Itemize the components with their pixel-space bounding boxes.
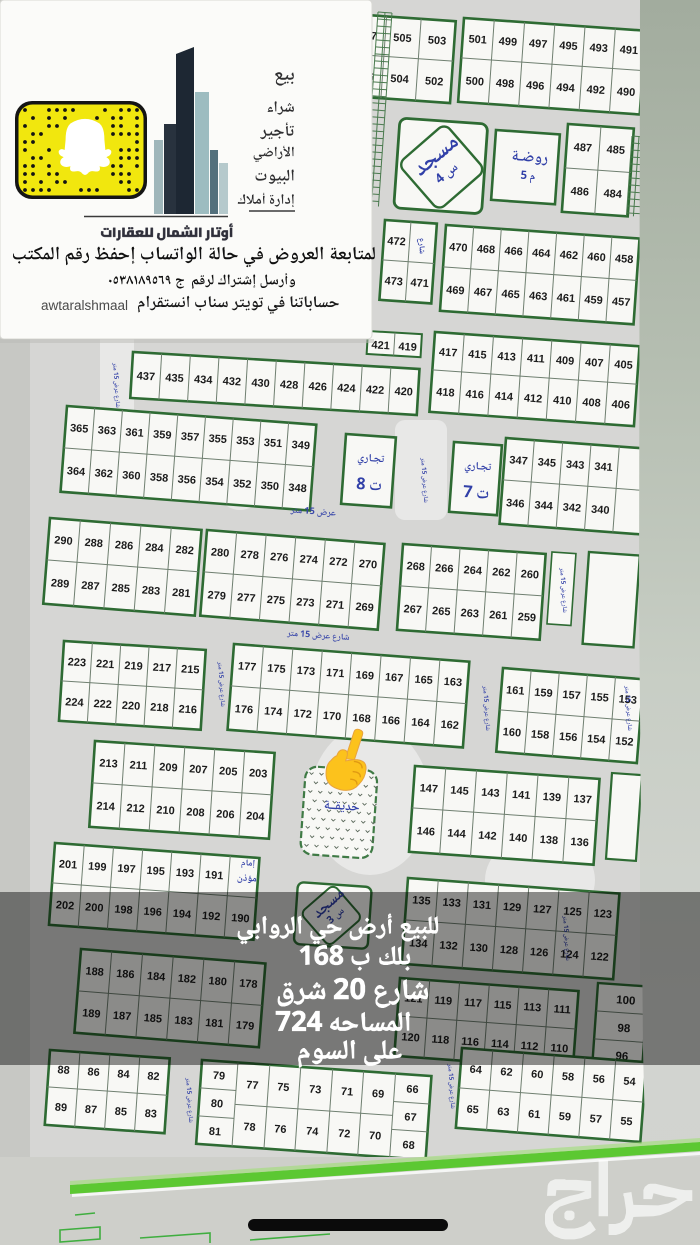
svg-text:221: 221 bbox=[96, 658, 115, 671]
svg-text:284: 284 bbox=[145, 542, 165, 555]
svg-text:419: 419 bbox=[398, 341, 417, 354]
svg-text:473: 473 bbox=[384, 275, 403, 288]
svg-text:71: 71 bbox=[341, 1086, 354, 1099]
svg-text:411: 411 bbox=[527, 352, 546, 365]
svg-text:218: 218 bbox=[150, 702, 169, 715]
svg-text:276: 276 bbox=[270, 551, 289, 564]
svg-text:495: 495 bbox=[559, 40, 578, 53]
svg-text:468: 468 bbox=[476, 243, 495, 256]
svg-text:341: 341 bbox=[594, 461, 613, 474]
svg-text:354: 354 bbox=[205, 476, 225, 489]
svg-text:484: 484 bbox=[603, 188, 623, 201]
svg-text:81: 81 bbox=[208, 1126, 221, 1139]
svg-text:413: 413 bbox=[497, 350, 516, 363]
svg-text:486: 486 bbox=[570, 185, 589, 198]
svg-text:160: 160 bbox=[502, 726, 521, 739]
svg-text:405: 405 bbox=[614, 359, 633, 372]
svg-text:214: 214 bbox=[96, 800, 116, 813]
svg-text:138: 138 bbox=[539, 834, 558, 847]
svg-text:358: 358 bbox=[149, 471, 168, 484]
svg-text:223: 223 bbox=[67, 656, 86, 669]
svg-text:222: 222 bbox=[93, 698, 112, 711]
svg-text:161: 161 bbox=[506, 684, 525, 697]
svg-text:408: 408 bbox=[582, 396, 601, 409]
svg-text:195: 195 bbox=[146, 865, 165, 878]
svg-text:219: 219 bbox=[124, 660, 143, 673]
svg-text:290: 290 bbox=[54, 534, 73, 547]
svg-text:418: 418 bbox=[436, 386, 455, 399]
svg-text:141: 141 bbox=[512, 789, 531, 802]
svg-text:212: 212 bbox=[126, 802, 145, 815]
svg-text:268: 268 bbox=[406, 560, 425, 573]
svg-text:65: 65 bbox=[466, 1104, 479, 1117]
svg-text:86: 86 bbox=[87, 1066, 100, 1079]
svg-text:274: 274 bbox=[299, 553, 319, 566]
svg-text:351: 351 bbox=[263, 437, 282, 450]
svg-text:289: 289 bbox=[50, 577, 69, 590]
svg-text:353: 353 bbox=[236, 435, 255, 448]
svg-text:267: 267 bbox=[403, 603, 422, 616]
svg-text:171: 171 bbox=[326, 667, 345, 680]
svg-text:505: 505 bbox=[393, 32, 412, 45]
svg-text:407: 407 bbox=[585, 357, 604, 370]
svg-text:146: 146 bbox=[416, 825, 435, 838]
svg-text:287: 287 bbox=[81, 580, 100, 593]
svg-text:343: 343 bbox=[566, 459, 585, 472]
svg-text:356: 356 bbox=[177, 474, 196, 487]
svg-text:437: 437 bbox=[136, 370, 155, 383]
svg-text:410: 410 bbox=[553, 394, 572, 407]
svg-text:145: 145 bbox=[450, 785, 469, 798]
svg-text:67: 67 bbox=[404, 1111, 417, 1124]
svg-text:167: 167 bbox=[384, 671, 403, 684]
svg-text:173: 173 bbox=[296, 665, 315, 678]
svg-text:457: 457 bbox=[612, 296, 631, 309]
svg-text:168: 168 bbox=[352, 712, 371, 725]
svg-text:204: 204 bbox=[246, 810, 266, 823]
svg-text:164: 164 bbox=[411, 717, 431, 730]
svg-text:61: 61 bbox=[528, 1108, 541, 1121]
svg-text:205: 205 bbox=[219, 765, 238, 778]
svg-text:69: 69 bbox=[372, 1088, 385, 1101]
svg-text:493: 493 bbox=[589, 42, 608, 55]
svg-text:193: 193 bbox=[175, 867, 194, 880]
svg-text:158: 158 bbox=[530, 728, 549, 741]
svg-text:469: 469 bbox=[446, 284, 465, 297]
svg-text:63: 63 bbox=[497, 1106, 510, 1119]
svg-text:269: 269 bbox=[355, 601, 374, 614]
svg-text:412: 412 bbox=[523, 392, 542, 405]
svg-text:275: 275 bbox=[266, 594, 285, 607]
svg-text:461: 461 bbox=[556, 292, 575, 305]
svg-text:211: 211 bbox=[129, 759, 148, 772]
svg-text:84: 84 bbox=[117, 1068, 131, 1081]
svg-text:66: 66 bbox=[406, 1083, 419, 1096]
svg-text:216: 216 bbox=[178, 703, 197, 716]
svg-text:209: 209 bbox=[159, 761, 178, 774]
svg-text:282: 282 bbox=[175, 544, 194, 557]
svg-text:89: 89 bbox=[54, 1101, 67, 1114]
svg-text:54: 54 bbox=[623, 1075, 637, 1088]
svg-text:342: 342 bbox=[562, 501, 581, 514]
svg-text:136: 136 bbox=[570, 836, 589, 849]
svg-text:152: 152 bbox=[615, 735, 634, 748]
svg-text:177: 177 bbox=[238, 660, 257, 673]
svg-text:166: 166 bbox=[381, 714, 400, 727]
svg-text:501: 501 bbox=[468, 33, 487, 46]
svg-text:362: 362 bbox=[94, 467, 113, 480]
svg-text:414: 414 bbox=[494, 390, 514, 403]
svg-text:281: 281 bbox=[172, 587, 191, 600]
svg-text:88: 88 bbox=[57, 1064, 70, 1077]
svg-text:357: 357 bbox=[180, 431, 199, 444]
svg-text:420: 420 bbox=[394, 386, 413, 399]
svg-text:154: 154 bbox=[587, 733, 607, 747]
svg-text:79: 79 bbox=[212, 1070, 225, 1083]
svg-text:409: 409 bbox=[556, 355, 575, 368]
svg-text:348: 348 bbox=[288, 482, 307, 495]
svg-text:78: 78 bbox=[243, 1121, 256, 1134]
svg-text:137: 137 bbox=[573, 793, 592, 806]
svg-text:170: 170 bbox=[322, 710, 341, 723]
svg-text:56: 56 bbox=[592, 1073, 605, 1086]
svg-text:153: 153 bbox=[618, 693, 637, 706]
svg-text:76: 76 bbox=[274, 1123, 287, 1136]
svg-text:264: 264 bbox=[463, 564, 483, 577]
svg-text:498: 498 bbox=[495, 77, 514, 90]
svg-text:72: 72 bbox=[338, 1128, 351, 1141]
svg-text:58: 58 bbox=[561, 1071, 574, 1084]
svg-text:466: 466 bbox=[504, 245, 523, 258]
svg-text:215: 215 bbox=[181, 663, 200, 676]
svg-text:500: 500 bbox=[465, 75, 484, 88]
svg-text:159: 159 bbox=[534, 687, 553, 700]
svg-text:155: 155 bbox=[590, 691, 609, 704]
svg-text:350: 350 bbox=[260, 480, 279, 493]
svg-text:163: 163 bbox=[443, 676, 462, 689]
svg-text:424: 424 bbox=[337, 382, 357, 395]
svg-text:416: 416 bbox=[465, 388, 484, 401]
svg-text:261: 261 bbox=[489, 609, 508, 622]
svg-text:260: 260 bbox=[520, 568, 539, 581]
svg-text:487: 487 bbox=[573, 141, 592, 154]
svg-text:349: 349 bbox=[291, 439, 310, 452]
svg-text:165: 165 bbox=[414, 674, 433, 687]
svg-text:492: 492 bbox=[586, 84, 605, 97]
svg-text:283: 283 bbox=[141, 584, 160, 597]
svg-text:139: 139 bbox=[542, 791, 561, 804]
svg-text:428: 428 bbox=[280, 379, 299, 392]
svg-text:417: 417 bbox=[439, 346, 458, 359]
svg-text:504: 504 bbox=[390, 73, 410, 86]
svg-text:70: 70 bbox=[369, 1130, 382, 1143]
svg-text:83: 83 bbox=[144, 1108, 157, 1121]
svg-text:80: 80 bbox=[210, 1098, 223, 1111]
svg-text:68: 68 bbox=[402, 1139, 415, 1152]
svg-text:363: 363 bbox=[97, 424, 116, 437]
svg-text:75: 75 bbox=[277, 1081, 290, 1094]
svg-text:147: 147 bbox=[419, 782, 438, 795]
svg-text:262: 262 bbox=[492, 566, 511, 579]
svg-text:207: 207 bbox=[189, 763, 208, 776]
svg-text:345: 345 bbox=[537, 456, 556, 469]
svg-text:472: 472 bbox=[387, 235, 406, 248]
svg-text:460: 460 bbox=[587, 251, 606, 264]
svg-text:55: 55 bbox=[620, 1115, 633, 1128]
svg-text:465: 465 bbox=[501, 288, 520, 301]
svg-text:494: 494 bbox=[556, 82, 576, 95]
svg-text:73: 73 bbox=[309, 1084, 322, 1097]
svg-text:496: 496 bbox=[526, 80, 545, 93]
svg-text:285: 285 bbox=[111, 582, 130, 595]
svg-text:277: 277 bbox=[237, 592, 256, 605]
svg-text:203: 203 bbox=[249, 767, 268, 780]
svg-text:213: 213 bbox=[99, 757, 118, 770]
svg-text:467: 467 bbox=[473, 286, 492, 299]
svg-text:169: 169 bbox=[355, 669, 374, 682]
svg-text:144: 144 bbox=[447, 827, 467, 840]
svg-text:157: 157 bbox=[562, 689, 581, 702]
svg-text:74: 74 bbox=[306, 1125, 320, 1138]
svg-text:346: 346 bbox=[506, 497, 525, 510]
svg-text:499: 499 bbox=[498, 35, 517, 48]
svg-text:265: 265 bbox=[432, 605, 451, 618]
svg-text:208: 208 bbox=[186, 806, 205, 819]
svg-text:266: 266 bbox=[435, 562, 454, 575]
svg-text:422: 422 bbox=[366, 384, 385, 397]
svg-text:432: 432 bbox=[222, 375, 241, 388]
svg-text:279: 279 bbox=[207, 589, 226, 602]
svg-text:286: 286 bbox=[114, 539, 133, 552]
svg-text:459: 459 bbox=[584, 294, 603, 307]
svg-text:288: 288 bbox=[84, 537, 103, 550]
svg-text:85: 85 bbox=[114, 1106, 127, 1119]
svg-text:175: 175 bbox=[267, 663, 286, 676]
svg-text:62: 62 bbox=[500, 1066, 513, 1079]
svg-text:355: 355 bbox=[208, 433, 227, 446]
svg-text:59: 59 bbox=[558, 1111, 571, 1124]
svg-text:197: 197 bbox=[117, 863, 136, 876]
svg-text:77: 77 bbox=[246, 1079, 259, 1092]
svg-text:259: 259 bbox=[517, 611, 536, 624]
svg-text:406: 406 bbox=[611, 399, 630, 412]
svg-text:199: 199 bbox=[88, 861, 107, 874]
svg-text:280: 280 bbox=[210, 546, 229, 559]
svg-text:210: 210 bbox=[156, 804, 175, 817]
svg-text:497: 497 bbox=[529, 38, 548, 51]
svg-text:176: 176 bbox=[234, 703, 253, 716]
svg-text:364: 364 bbox=[66, 465, 86, 478]
svg-text:365: 365 bbox=[70, 422, 89, 435]
svg-text:201: 201 bbox=[58, 858, 77, 871]
svg-text:470: 470 bbox=[449, 241, 468, 254]
svg-text:347: 347 bbox=[509, 454, 528, 467]
svg-text:434: 434 bbox=[194, 374, 214, 387]
svg-text:273: 273 bbox=[296, 596, 315, 609]
svg-text:191: 191 bbox=[205, 869, 224, 882]
svg-text:217: 217 bbox=[152, 662, 171, 675]
svg-text:485: 485 bbox=[606, 144, 625, 157]
svg-text:462: 462 bbox=[559, 249, 578, 262]
svg-text:263: 263 bbox=[460, 607, 479, 620]
svg-text:140: 140 bbox=[509, 832, 528, 845]
svg-text:463: 463 bbox=[529, 290, 548, 303]
svg-text:60: 60 bbox=[531, 1068, 544, 1081]
svg-text:360: 360 bbox=[122, 469, 141, 482]
svg-text:458: 458 bbox=[615, 253, 634, 266]
svg-text:156: 156 bbox=[559, 731, 578, 744]
svg-text:435: 435 bbox=[165, 372, 184, 385]
svg-text:143: 143 bbox=[481, 787, 500, 800]
svg-text:415: 415 bbox=[468, 348, 487, 361]
svg-text:82: 82 bbox=[147, 1070, 160, 1083]
svg-text:344: 344 bbox=[534, 499, 554, 512]
svg-text:278: 278 bbox=[240, 549, 259, 562]
svg-text:awtaralshmaal: awtaralshmaal bbox=[41, 298, 128, 313]
svg-text:359: 359 bbox=[153, 429, 172, 442]
svg-text:491: 491 bbox=[619, 44, 638, 57]
svg-text:490: 490 bbox=[616, 86, 635, 99]
svg-text:352: 352 bbox=[233, 478, 252, 491]
svg-text:502: 502 bbox=[425, 75, 444, 88]
svg-text:206: 206 bbox=[216, 808, 235, 821]
svg-text:270: 270 bbox=[358, 558, 377, 571]
svg-text:471: 471 bbox=[410, 277, 429, 290]
svg-text:361: 361 bbox=[125, 426, 144, 439]
svg-text:340: 340 bbox=[591, 504, 610, 517]
svg-text:272: 272 bbox=[329, 556, 348, 569]
svg-text:426: 426 bbox=[308, 380, 327, 393]
svg-text:220: 220 bbox=[121, 700, 140, 713]
svg-text:174: 174 bbox=[264, 705, 284, 718]
svg-text:464: 464 bbox=[532, 247, 552, 260]
svg-text:503: 503 bbox=[427, 34, 446, 47]
svg-text:172: 172 bbox=[293, 708, 312, 721]
svg-text:162: 162 bbox=[440, 719, 459, 732]
svg-text:57: 57 bbox=[589, 1113, 602, 1126]
svg-text:142: 142 bbox=[478, 830, 497, 843]
svg-text:224: 224 bbox=[65, 696, 85, 709]
svg-text:87: 87 bbox=[84, 1104, 97, 1117]
svg-text:430: 430 bbox=[251, 377, 270, 390]
svg-text:271: 271 bbox=[325, 599, 344, 612]
svg-text:64: 64 bbox=[469, 1064, 483, 1077]
